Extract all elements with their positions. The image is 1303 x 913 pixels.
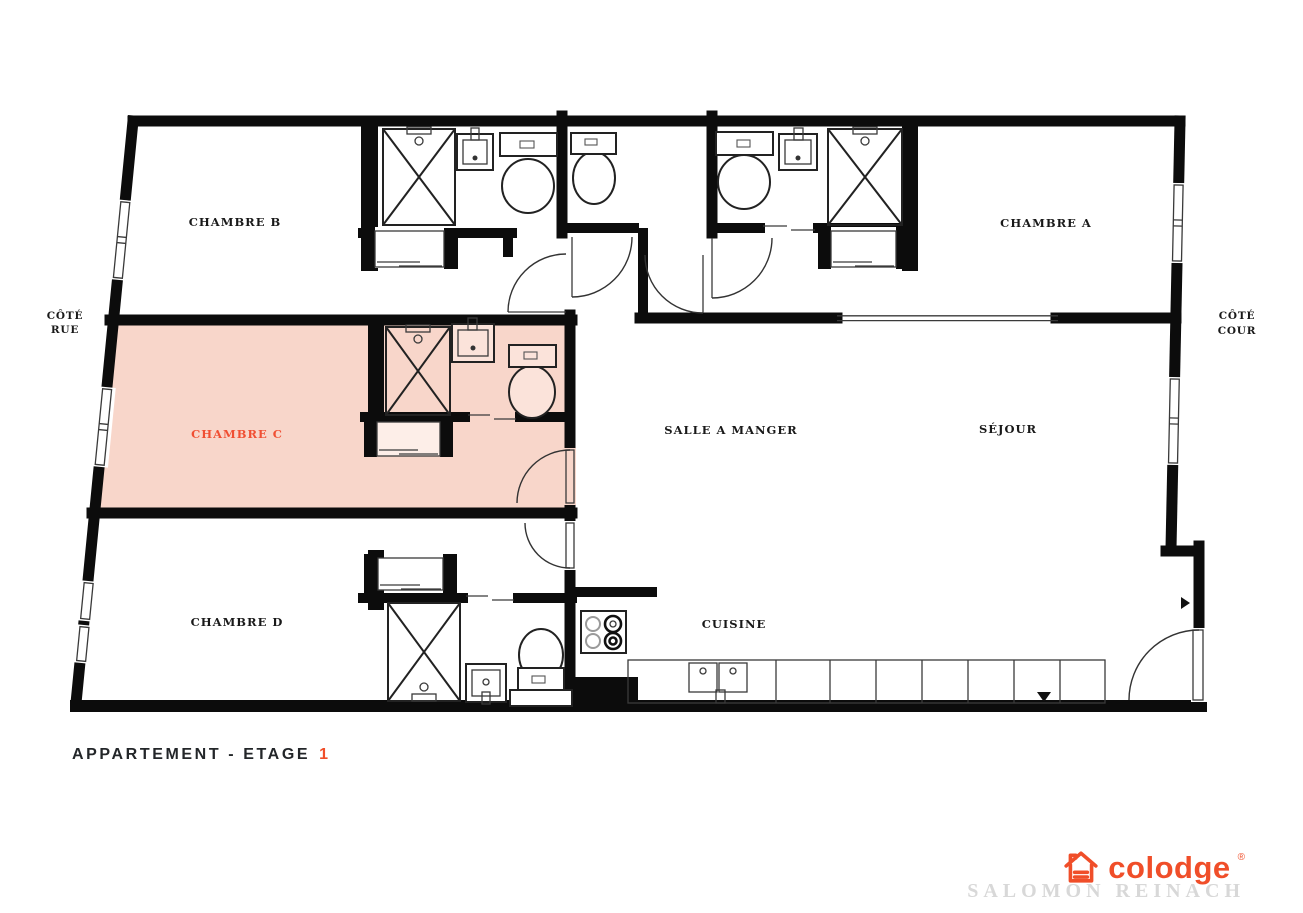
window-icon <box>72 624 93 663</box>
toilet-icon <box>716 132 773 209</box>
side-label-cour-2: COUR <box>1218 325 1257 337</box>
window-icon <box>1164 377 1183 465</box>
door-icon <box>572 237 632 297</box>
door-icon <box>645 255 703 313</box>
sink-icon <box>466 664 506 704</box>
door-icon <box>712 238 772 298</box>
closet-icon <box>364 554 457 594</box>
registered-mark: ® <box>1238 852 1245 863</box>
room-label-sejour: SÉJOUR <box>979 422 1037 436</box>
room-label-chambre-c: CHAMBRE C <box>191 427 283 441</box>
kitchen-counter <box>628 660 1105 703</box>
room-label-cuisine: CUISINE <box>702 617 767 631</box>
side-label-rue: CÔTÉ <box>47 308 84 322</box>
side-label-rue-2: RUE <box>51 324 79 336</box>
floor-plan-svg: CHAMBRE B CHAMBRE A CHAMBRE C CHAMBRE D … <box>0 0 1303 913</box>
shower-icon <box>383 127 455 225</box>
room-label-chambre-b: CHAMBRE B <box>189 215 281 229</box>
closet-icon <box>361 227 458 269</box>
colodge-wordmark: colodge <box>1108 852 1230 883</box>
sink-icon <box>452 318 494 362</box>
room-label-chambre-d: CHAMBRE D <box>191 615 284 629</box>
door-icon <box>508 254 566 312</box>
doors <box>466 226 1207 702</box>
toilet-icon <box>510 629 572 706</box>
chambre-c-highlight <box>93 317 573 511</box>
kitchen-fixtures <box>581 611 1105 703</box>
residence-name: SALOMON REINACH <box>967 880 1245 903</box>
kitchen-sink-icon <box>689 663 747 703</box>
shower-icon <box>828 127 902 225</box>
toilet-icon <box>500 133 557 213</box>
sink-icon <box>457 128 493 170</box>
shower-icon <box>388 603 460 701</box>
window-icon <box>76 580 97 621</box>
plan-title: APPARTEMENT - ETAGE1 <box>72 746 331 764</box>
room-label-salle-a-manger: SALLE A MANGER <box>664 423 797 437</box>
brand-block: colodge ® SALOMON REINACH <box>967 849 1245 903</box>
toilet-icon <box>509 345 556 418</box>
sink-icon <box>779 128 817 170</box>
window-icon <box>1168 183 1187 263</box>
plan-title-text: APPARTEMENT - ETAGE <box>72 746 310 763</box>
side-label-cour: CÔTÉ <box>1219 308 1256 322</box>
entry-arrow-icon <box>1181 597 1190 609</box>
toilet-icon <box>571 133 616 204</box>
closet-icon <box>818 227 909 269</box>
window-icon <box>109 199 134 280</box>
room-label-chambre-a: CHAMBRE A <box>1000 216 1092 230</box>
plan-title-floor-number: 1 <box>319 746 331 763</box>
door-icon <box>525 521 576 570</box>
stove-icon <box>581 611 626 653</box>
